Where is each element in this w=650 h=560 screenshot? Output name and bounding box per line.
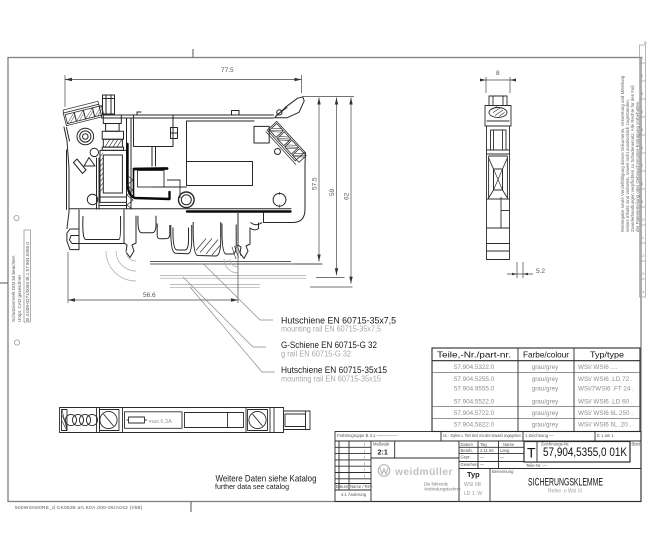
svg-text:WSI 6B: WSI 6B	[464, 482, 482, 488]
svg-text:grau/grey: grau/grey	[532, 410, 559, 417]
svg-text:mounting rail EN 60715-35x7,5: mounting rail EN 60715-35x7,5	[281, 325, 382, 334]
svg-text:57.904.9555.0: 57.904.9555.0	[454, 386, 495, 393]
svg-text:8: 8	[496, 70, 500, 77]
svg-text:Bearb.: Bearb.	[461, 448, 473, 453]
svg-text:max.6,3A: max.6,3A	[149, 419, 173, 425]
svg-text:WSI/ WSI6 6L .20 .: WSI/ WSI6 6L .20 .	[578, 421, 632, 428]
svg-text:14: 14	[640, 289, 645, 294]
svg-text:grau/grey: grau/grey	[532, 376, 559, 383]
svg-text:Name / Rev.: Name / Rev.	[350, 484, 373, 489]
svg-text:57.5: 57.5	[312, 177, 319, 190]
svg-text:57.904.5322.0: 57.904.5322.0	[454, 364, 495, 371]
svg-text:Name: Name	[503, 442, 515, 447]
svg-text:Teile,-Nr./part-nr.: Teile,-Nr./part-nr.	[437, 350, 511, 359]
svg-text:57.904.5522.0: 57.904.5522.0	[454, 399, 495, 406]
svg-text:Farbe/colour: Farbe/colour	[523, 350, 569, 359]
svg-text:56.6: 56.6	[143, 292, 156, 299]
svg-text:der Patenterteilung oder Gebra: der Patenterteilung oder Gebrauchsmuster…	[635, 101, 640, 232]
svg-text:59: 59	[329, 188, 336, 196]
svg-text:Typ: Typ	[467, 470, 480, 479]
svg-text:Farbtongruppe B 3.1 —————: Farbtongruppe B 3.1 —————	[337, 433, 398, 438]
svg-text:Reihe .n Wsl /3: Reihe .n Wsl /3	[548, 489, 582, 495]
svg-text:Datum: Datum	[336, 484, 349, 489]
svg-text:13: 13	[640, 271, 645, 276]
svg-text:57.904.5722.0: 57.904.5722.0	[454, 410, 495, 417]
svg-text:Gesehen: Gesehen	[461, 462, 479, 467]
svg-text:Teile-Nr. —: Teile-Nr. —	[526, 463, 548, 468]
svg-text:LD 1 .W: LD 1 .W	[464, 491, 482, 497]
svg-text:further data see catalog: further data see catalog	[215, 482, 289, 491]
svg-text:grau/grey: grau/grey	[532, 364, 559, 371]
svg-text:62: 62	[344, 192, 351, 200]
svg-text:Urspr. CAD gezeichnet: Urspr. CAD gezeichnet	[17, 275, 22, 322]
svg-text:g rail EN 60715-G 32: g rail EN 60715-G 32	[281, 350, 351, 359]
svg-text:Typ/type: Typ/type	[590, 350, 624, 359]
svg-text:E 1 am 1: E 1 am 1	[597, 433, 614, 438]
svg-text:WSI/ WSI6 ....: WSI/ WSI6 ....	[578, 364, 618, 371]
svg-text:WSI/ WSI6 6L 250 .: WSI/ WSI6 6L 250 .	[578, 410, 633, 417]
svg-text:Gepr.: Gepr.	[461, 454, 471, 459]
svg-text:Lang: Lang	[500, 448, 510, 453]
svg-text:grau/grey: grau/grey	[532, 399, 559, 406]
svg-text:5.2: 5.2	[536, 268, 545, 275]
svg-text:Benennung: Benennung	[492, 469, 514, 474]
svg-text:10: 10	[640, 217, 645, 222]
svg-text:B 4.009-0271/0084 Bl.1 57.90: B 4.009-0271/0084 Bl.1 57.904.5355.0	[25, 242, 30, 321]
svg-text:WSI/ WSI6 .LD 72 .: WSI/ WSI6 .LD 72 .	[578, 376, 633, 383]
svg-text:Zeichnungs-Nr.: Zeichnungs-Nr.	[541, 441, 569, 446]
svg-text:Tag: Tag	[480, 442, 487, 447]
svg-text:Maßstab: Maßstab	[373, 442, 390, 447]
svg-text:mounting rail EN 60715-35x15: mounting rail EN 60715-35x15	[281, 375, 382, 384]
svg-text:WSI/7WSI6 .FT 24 .: WSI/7WSI6 .FT 24 .	[578, 386, 634, 393]
svg-text:WSI/ WSI6 .LD 60 .: WSI/ WSI6 .LD 60 .	[578, 399, 633, 406]
svg-text:weidmüller: weidmüller	[394, 466, 453, 478]
svg-text:Blatt: Blatt	[632, 441, 641, 446]
svg-text:grau/grey: grau/grey	[532, 421, 559, 428]
svg-text:UL - Styles u. Titel sind mit: UL - Styles u. Titel sind mit dem Bautei…	[443, 433, 522, 438]
svg-text:Verbindungstechnik: Verbindungstechnik	[424, 487, 461, 492]
svg-text:Schutzvermerk DIN 34 beachten: Schutzvermerk DIN 34 beachten	[11, 255, 16, 322]
svg-text:57,904,5355,0 01K: 57,904,5355,0 01K	[543, 447, 627, 459]
svg-text:12: 12	[640, 253, 645, 258]
svg-text:500WSN00RE_d CK0639 art.K0A.: 500WSN00RE_d CK0639 art.K0A.000-05/A042 …	[15, 505, 143, 511]
svg-text:57.904.5255.0: 57.904.5255.0	[454, 376, 495, 383]
svg-text:4.1 Änderung: 4.1 Änderung	[341, 492, 367, 497]
svg-text:77.5: 77.5	[221, 67, 234, 74]
svg-text:grau/grey: grau/grey	[532, 386, 559, 393]
svg-text:2:1: 2:1	[378, 448, 388, 457]
svg-text:1 Zeichnung —: 1 Zeichnung —	[525, 433, 554, 438]
svg-text:SICHERUNGSKLEMME: SICHERUNGSKLEMME	[528, 477, 603, 489]
svg-text:Datum: Datum	[461, 442, 474, 447]
svg-text:T: T	[527, 445, 536, 461]
svg-text:57.904.5822.0: 57.904.5822.0	[454, 421, 495, 428]
svg-text:2.11.94: 2.11.94	[480, 448, 494, 453]
